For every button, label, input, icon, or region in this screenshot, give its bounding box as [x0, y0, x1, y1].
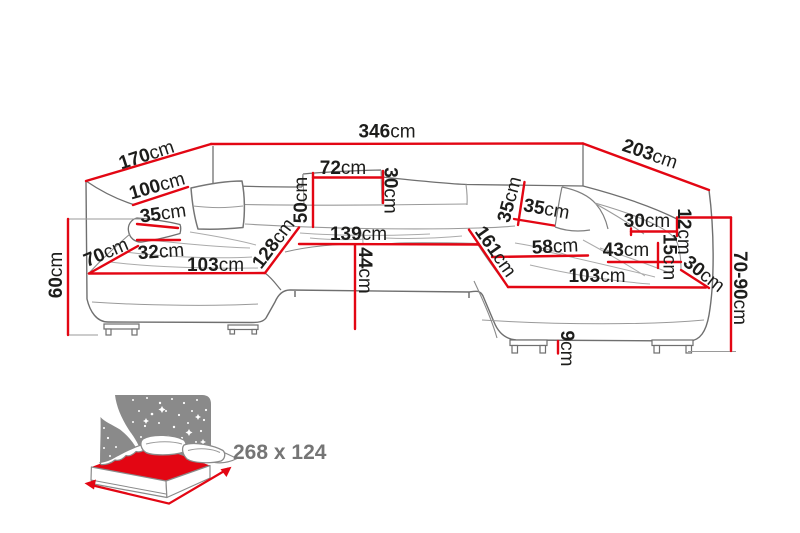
svg-text:70-90cm: 70-90cm	[730, 251, 751, 325]
svg-text:15cm: 15cm	[659, 234, 680, 280]
svg-text:72cm: 72cm	[320, 158, 366, 179]
svg-text:268 x 124: 268 x 124	[233, 441, 327, 464]
svg-text:30cm: 30cm	[624, 211, 670, 232]
svg-text:9cm: 9cm	[557, 331, 578, 367]
svg-text:32cm: 32cm	[137, 239, 185, 263]
svg-text:60cm: 60cm	[46, 252, 67, 298]
svg-text:103cm: 103cm	[187, 255, 244, 276]
svg-text:50cm: 50cm	[291, 177, 312, 223]
svg-text:44cm: 44cm	[355, 247, 376, 293]
svg-text:103cm: 103cm	[568, 266, 625, 287]
svg-text:30cm: 30cm	[380, 167, 401, 213]
svg-text:43cm: 43cm	[603, 240, 649, 261]
svg-text:58cm: 58cm	[531, 235, 579, 258]
svg-text:139cm: 139cm	[330, 224, 387, 245]
svg-text:346cm: 346cm	[358, 121, 415, 142]
